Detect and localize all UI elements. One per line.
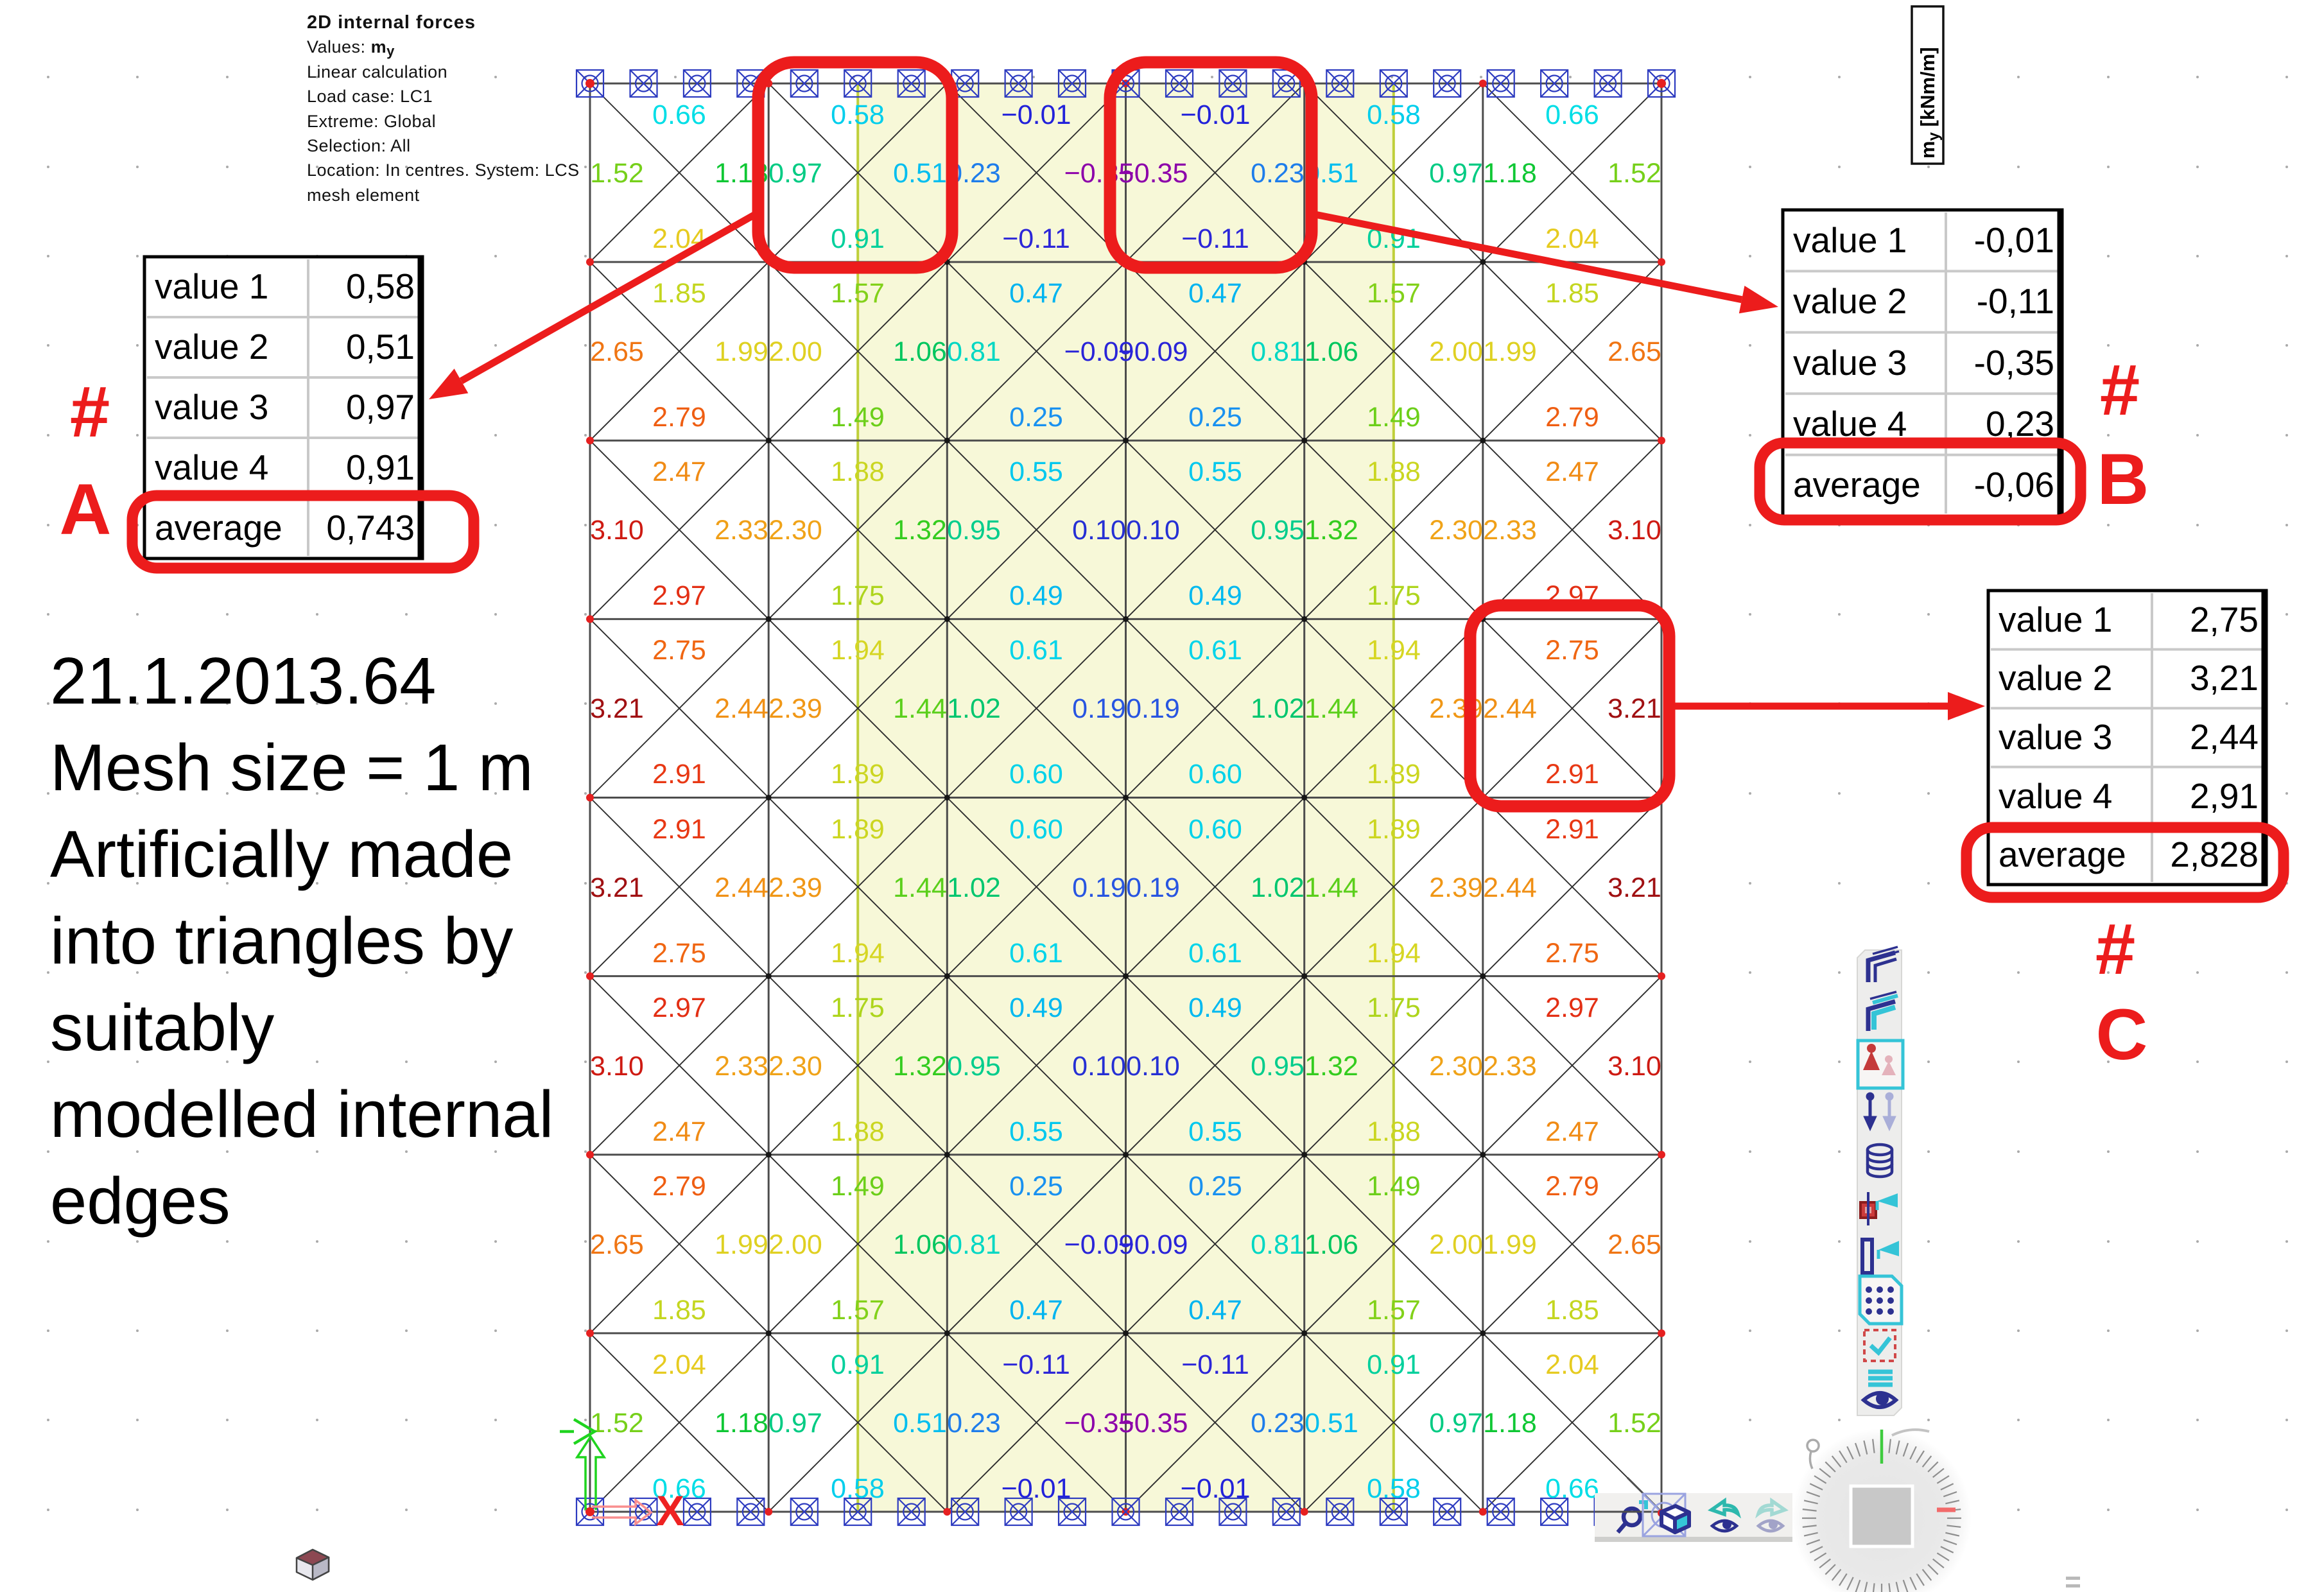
svg-text:1.18: 1.18 <box>715 1408 768 1439</box>
svg-text:average: average <box>1793 465 1921 505</box>
svg-text:1.57: 1.57 <box>1367 1295 1421 1326</box>
svg-text:value 1: value 1 <box>155 266 268 306</box>
svg-text:0.10: 0.10 <box>1072 1051 1126 1082</box>
svg-text:−0.11: −0.11 <box>1181 1349 1249 1380</box>
svg-text:2.47: 2.47 <box>652 1116 706 1147</box>
svg-text:2.04: 2.04 <box>1545 1349 1599 1380</box>
svg-text:0.60: 0.60 <box>1188 759 1242 790</box>
svg-text:1.89: 1.89 <box>831 759 885 790</box>
svg-text:0.47: 0.47 <box>1009 1295 1063 1326</box>
svg-text:1.49: 1.49 <box>831 402 885 433</box>
svg-text:0.49: 0.49 <box>1188 992 1242 1023</box>
svg-text:1.85: 1.85 <box>1545 278 1599 309</box>
svg-text:1.99: 1.99 <box>715 1229 768 1260</box>
svg-text:3.10: 3.10 <box>590 1051 644 1082</box>
svg-text:0.58: 0.58 <box>831 1473 885 1504</box>
svg-text:2.39: 2.39 <box>768 872 822 903</box>
svg-text:21.1.2013.64: 21.1.2013.64 <box>50 644 436 718</box>
svg-text:0.51: 0.51 <box>1305 1408 1358 1439</box>
svg-text:2.65: 2.65 <box>1608 336 1661 367</box>
svg-text:1.85: 1.85 <box>652 1295 706 1326</box>
svg-text:2.04: 2.04 <box>652 1349 706 1380</box>
svg-text:0,51: 0,51 <box>346 327 415 367</box>
svg-text:value 1: value 1 <box>1793 220 1907 260</box>
svg-text:2.75: 2.75 <box>1545 635 1599 666</box>
svg-text:0,91: 0,91 <box>346 447 415 487</box>
svg-text:1.32: 1.32 <box>893 1051 947 1082</box>
svg-text:0.47: 0.47 <box>1188 278 1242 309</box>
svg-text:2,44: 2,44 <box>2190 717 2259 757</box>
svg-text:2.44: 2.44 <box>715 693 768 724</box>
svg-text:-0,06: -0,06 <box>1974 465 2054 505</box>
svg-text:2,91: 2,91 <box>2190 776 2259 816</box>
svg-text:0.95: 0.95 <box>1251 515 1305 546</box>
svg-text:1.18: 1.18 <box>1483 1408 1537 1439</box>
svg-text:−0.01: −0.01 <box>1002 99 1071 130</box>
svg-text:1.94: 1.94 <box>1367 635 1421 666</box>
svg-text:0.97: 0.97 <box>1429 158 1483 189</box>
svg-text:suitably: suitably <box>50 991 275 1064</box>
svg-text:1.57: 1.57 <box>1367 278 1421 309</box>
svg-text:1.99: 1.99 <box>1483 336 1537 367</box>
svg-text:1.75: 1.75 <box>1367 992 1421 1023</box>
svg-text:1.02: 1.02 <box>947 693 1001 724</box>
svg-text:X: X <box>656 1487 684 1534</box>
svg-text:mesh element: mesh element <box>307 186 420 205</box>
svg-text:value 2: value 2 <box>1793 281 1907 321</box>
svg-text:0.61: 0.61 <box>1009 635 1063 666</box>
svg-text:3.21: 3.21 <box>1608 872 1661 903</box>
svg-text:2.33: 2.33 <box>1483 1051 1537 1082</box>
svg-text:0.23: 0.23 <box>1251 158 1305 189</box>
svg-text:average: average <box>1999 835 2126 874</box>
svg-text:#: # <box>2095 909 2135 989</box>
svg-text:1.06: 1.06 <box>893 1229 947 1260</box>
svg-text:−0.01: −0.01 <box>1002 1473 1071 1504</box>
svg-text:0.25: 0.25 <box>1009 1171 1063 1202</box>
svg-text:3.10: 3.10 <box>590 515 644 546</box>
svg-text:2.47: 2.47 <box>1545 1116 1599 1147</box>
svg-text:0.23: 0.23 <box>947 1408 1001 1439</box>
svg-text:0.97: 0.97 <box>1429 1408 1483 1439</box>
svg-text:Artificially made: Artificially made <box>50 817 513 891</box>
svg-text:0.25: 0.25 <box>1188 402 1242 433</box>
svg-text:−0.11: −0.11 <box>1002 1349 1070 1380</box>
svg-text:−0.35: −0.35 <box>1118 1408 1188 1439</box>
svg-text:3.10: 3.10 <box>1608 515 1661 546</box>
svg-text:−0.35: −0.35 <box>1118 158 1188 189</box>
svg-text:0.51: 0.51 <box>893 1408 947 1439</box>
svg-text:3,21: 3,21 <box>2190 658 2259 698</box>
svg-text:1.32: 1.32 <box>1305 515 1358 546</box>
svg-text:-0,11: -0,11 <box>1977 281 2054 321</box>
svg-text:value 4: value 4 <box>155 447 268 487</box>
svg-text:2.79: 2.79 <box>1545 402 1599 433</box>
svg-text:0.66: 0.66 <box>1545 99 1599 130</box>
svg-text:0.55: 0.55 <box>1009 456 1063 487</box>
svg-text:Mesh size = 1 m: Mesh size = 1 m <box>50 731 533 804</box>
svg-text:2.39: 2.39 <box>1429 872 1483 903</box>
svg-text:1.06: 1.06 <box>893 336 947 367</box>
svg-text:0.66: 0.66 <box>1545 1473 1599 1504</box>
svg-text:2,75: 2,75 <box>2190 600 2259 639</box>
svg-text:−0.11: −0.11 <box>1002 223 1070 254</box>
svg-text:B: B <box>2097 439 2149 519</box>
svg-text:0.47: 0.47 <box>1009 278 1063 309</box>
svg-text:1.85: 1.85 <box>1545 1295 1599 1326</box>
svg-text:1.75: 1.75 <box>831 992 885 1023</box>
svg-text:2.44: 2.44 <box>715 872 768 903</box>
svg-text:Values: my: Values: my <box>307 37 395 59</box>
svg-text:1.49: 1.49 <box>1367 402 1421 433</box>
svg-text:3.21: 3.21 <box>590 693 644 724</box>
svg-text:2.65: 2.65 <box>590 1229 644 1260</box>
svg-text:Linear calculation: Linear calculation <box>307 62 447 82</box>
svg-text:-0,35: -0,35 <box>1974 343 2054 383</box>
svg-text:0,743: 0,743 <box>326 508 415 548</box>
svg-text:1.52: 1.52 <box>590 158 644 189</box>
svg-text:1.88: 1.88 <box>831 1116 885 1147</box>
svg-text:1.32: 1.32 <box>1305 1051 1358 1082</box>
svg-text:1.49: 1.49 <box>1367 1171 1421 1202</box>
svg-text:average: average <box>155 508 282 548</box>
svg-text:1.88: 1.88 <box>831 456 885 487</box>
svg-text:0.25: 0.25 <box>1188 1171 1242 1202</box>
svg-text:−0.01: −0.01 <box>1181 99 1251 130</box>
svg-text:Load case: LC1: Load case: LC1 <box>307 87 433 106</box>
svg-text:2.65: 2.65 <box>1608 1229 1661 1260</box>
svg-text:2.75: 2.75 <box>652 635 706 666</box>
svg-text:0.91: 0.91 <box>831 1349 885 1380</box>
svg-text:0.95: 0.95 <box>1251 1051 1305 1082</box>
svg-text:1.18: 1.18 <box>1483 158 1537 189</box>
svg-text:2.30: 2.30 <box>768 1051 822 1082</box>
svg-text:2,828: 2,828 <box>2170 835 2259 874</box>
svg-text:1.94: 1.94 <box>1367 938 1421 969</box>
svg-text:2.44: 2.44 <box>1483 693 1537 724</box>
svg-text:2.00: 2.00 <box>768 336 822 367</box>
svg-text:value 3: value 3 <box>155 387 268 427</box>
svg-text:1.32: 1.32 <box>893 515 947 546</box>
svg-text:2.97: 2.97 <box>652 992 706 1023</box>
svg-text:0.95: 0.95 <box>947 515 1001 546</box>
svg-text:value 3: value 3 <box>1999 717 2112 757</box>
svg-text:2.00: 2.00 <box>1429 1229 1483 1260</box>
svg-text:value 4: value 4 <box>1999 776 2112 816</box>
svg-text:0.19: 0.19 <box>1126 872 1180 903</box>
svg-text:0,58: 0,58 <box>346 266 415 306</box>
svg-text:0.97: 0.97 <box>768 1408 822 1439</box>
svg-text:0.60: 0.60 <box>1009 814 1063 845</box>
svg-text:1.99: 1.99 <box>1483 1229 1537 1260</box>
svg-text:0.97: 0.97 <box>768 158 822 189</box>
svg-text:0.49: 0.49 <box>1188 580 1242 611</box>
svg-text:1.52: 1.52 <box>1608 158 1661 189</box>
svg-text:1.44: 1.44 <box>1305 872 1358 903</box>
svg-text:1.57: 1.57 <box>831 1295 885 1326</box>
svg-text:2.91: 2.91 <box>652 759 706 790</box>
svg-text:0.91: 0.91 <box>831 223 885 254</box>
svg-text:0.58: 0.58 <box>1367 1473 1421 1504</box>
svg-text:value 2: value 2 <box>155 327 268 367</box>
svg-text:3.21: 3.21 <box>590 872 644 903</box>
svg-text:0.19: 0.19 <box>1072 872 1126 903</box>
svg-text:1.88: 1.88 <box>1367 1116 1421 1147</box>
svg-text:2.75: 2.75 <box>1545 938 1599 969</box>
svg-text:-0,01: -0,01 <box>1974 220 2054 260</box>
svg-text:value 3: value 3 <box>1793 343 1907 383</box>
svg-text:0.47: 0.47 <box>1188 1295 1242 1326</box>
svg-text:2.30: 2.30 <box>1429 515 1483 546</box>
svg-text:1.94: 1.94 <box>831 635 885 666</box>
svg-text:2.33: 2.33 <box>715 1051 768 1082</box>
svg-text:−0.09: −0.09 <box>1118 1229 1188 1260</box>
svg-text:0.95: 0.95 <box>947 1051 1001 1082</box>
svg-text:2.00: 2.00 <box>1429 336 1483 367</box>
svg-text:0.81: 0.81 <box>947 336 1001 367</box>
svg-text:0.10: 0.10 <box>1126 1051 1180 1082</box>
svg-text:0.58: 0.58 <box>831 99 885 130</box>
svg-text:0.60: 0.60 <box>1188 814 1242 845</box>
svg-text:0.81: 0.81 <box>1251 1229 1305 1260</box>
svg-text:2.44: 2.44 <box>1483 872 1537 903</box>
svg-text:1.89: 1.89 <box>1367 814 1421 845</box>
svg-text:0.60: 0.60 <box>1009 759 1063 790</box>
svg-text:0.61: 0.61 <box>1188 938 1242 969</box>
svg-text:1.99: 1.99 <box>715 336 768 367</box>
svg-text:2.75: 2.75 <box>652 938 706 969</box>
svg-text:Location: In centres. System:: Location: In centres. System: LCS <box>307 160 580 180</box>
svg-text:0.10: 0.10 <box>1126 515 1180 546</box>
svg-text:0.49: 0.49 <box>1009 992 1063 1023</box>
svg-text:1.44: 1.44 <box>893 872 947 903</box>
svg-text:2.47: 2.47 <box>1545 456 1599 487</box>
svg-text:0.58: 0.58 <box>1367 99 1421 130</box>
svg-text:1.06: 1.06 <box>1305 336 1358 367</box>
svg-text:2.04: 2.04 <box>1545 223 1599 254</box>
svg-text:Selection: All: Selection: All <box>307 136 411 155</box>
svg-text:1.88: 1.88 <box>1367 456 1421 487</box>
svg-text:0.10: 0.10 <box>1072 515 1126 546</box>
svg-text:2.91: 2.91 <box>1545 814 1599 845</box>
svg-text:3.21: 3.21 <box>1608 693 1661 724</box>
svg-text:value 1: value 1 <box>1999 600 2112 639</box>
svg-text:0.25: 0.25 <box>1009 402 1063 433</box>
svg-text:1.02: 1.02 <box>947 872 1001 903</box>
svg-text:edges: edges <box>50 1164 230 1238</box>
svg-text:0.51: 0.51 <box>893 158 947 189</box>
svg-text:3.10: 3.10 <box>1608 1051 1661 1082</box>
svg-text:#: # <box>2100 350 2140 430</box>
svg-text:2.33: 2.33 <box>715 515 768 546</box>
svg-text:0.55: 0.55 <box>1188 456 1242 487</box>
svg-text:1.75: 1.75 <box>831 580 885 611</box>
svg-text:0.23: 0.23 <box>1251 1408 1305 1439</box>
svg-text:0.81: 0.81 <box>1251 336 1305 367</box>
svg-text:1.44: 1.44 <box>1305 693 1358 724</box>
svg-text:2.47: 2.47 <box>652 456 706 487</box>
svg-text:2.79: 2.79 <box>1545 1171 1599 1202</box>
svg-text:0.55: 0.55 <box>1009 1116 1063 1147</box>
svg-text:#: # <box>70 372 110 452</box>
svg-text:1.94: 1.94 <box>831 938 885 969</box>
svg-text:1.06: 1.06 <box>1305 1229 1358 1260</box>
svg-text:1.75: 1.75 <box>1367 580 1421 611</box>
svg-text:1.02: 1.02 <box>1251 693 1305 724</box>
svg-text:my [kNm/m]: my [kNm/m] <box>1916 47 1943 159</box>
svg-text:0.61: 0.61 <box>1188 635 1242 666</box>
svg-text:2.65: 2.65 <box>590 336 644 367</box>
svg-text:0.91: 0.91 <box>1367 1349 1421 1380</box>
svg-text:2.39: 2.39 <box>768 693 822 724</box>
svg-text:1.85: 1.85 <box>652 278 706 309</box>
svg-text:2.33: 2.33 <box>1483 515 1537 546</box>
svg-text:0.81: 0.81 <box>947 1229 1001 1260</box>
svg-text:2.30: 2.30 <box>1429 1051 1483 1082</box>
svg-text:A: A <box>60 469 112 549</box>
svg-text:Extreme: Global: Extreme: Global <box>307 112 436 131</box>
svg-text:1.52: 1.52 <box>1608 1408 1661 1439</box>
svg-text:0.49: 0.49 <box>1009 580 1063 611</box>
svg-text:2.79: 2.79 <box>652 1171 706 1202</box>
svg-text:0.19: 0.19 <box>1072 693 1126 724</box>
svg-text:0.55: 0.55 <box>1188 1116 1242 1147</box>
svg-text:modelled internal: modelled internal <box>50 1077 553 1151</box>
svg-text:0.19: 0.19 <box>1126 693 1180 724</box>
svg-text:1.44: 1.44 <box>893 693 947 724</box>
svg-text:2.97: 2.97 <box>652 580 706 611</box>
svg-text:1.89: 1.89 <box>831 814 885 845</box>
svg-text:2.79: 2.79 <box>652 402 706 433</box>
svg-text:2.30: 2.30 <box>768 515 822 546</box>
svg-text:0.66: 0.66 <box>652 99 706 130</box>
svg-text:−0.09: −0.09 <box>1118 336 1188 367</box>
svg-text:2.97: 2.97 <box>1545 992 1599 1023</box>
svg-text:2D internal forces: 2D internal forces <box>307 12 476 33</box>
svg-text:1.52: 1.52 <box>590 1408 644 1439</box>
svg-text:−0.11: −0.11 <box>1181 223 1249 254</box>
svg-text:2.91: 2.91 <box>652 814 706 845</box>
svg-text:1.02: 1.02 <box>1251 872 1305 903</box>
svg-text:value 2: value 2 <box>1999 658 2112 698</box>
svg-text:0,97: 0,97 <box>346 387 415 427</box>
svg-text:2.91: 2.91 <box>1545 759 1599 790</box>
svg-text:0.61: 0.61 <box>1009 938 1063 969</box>
svg-text:C: C <box>2096 994 2148 1075</box>
svg-text:1.89: 1.89 <box>1367 759 1421 790</box>
svg-text:into triangles by: into triangles by <box>50 904 514 978</box>
svg-text:1.57: 1.57 <box>831 278 885 309</box>
svg-text:−0.01: −0.01 <box>1181 1473 1251 1504</box>
svg-text:2.00: 2.00 <box>768 1229 822 1260</box>
svg-text:1.49: 1.49 <box>831 1171 885 1202</box>
